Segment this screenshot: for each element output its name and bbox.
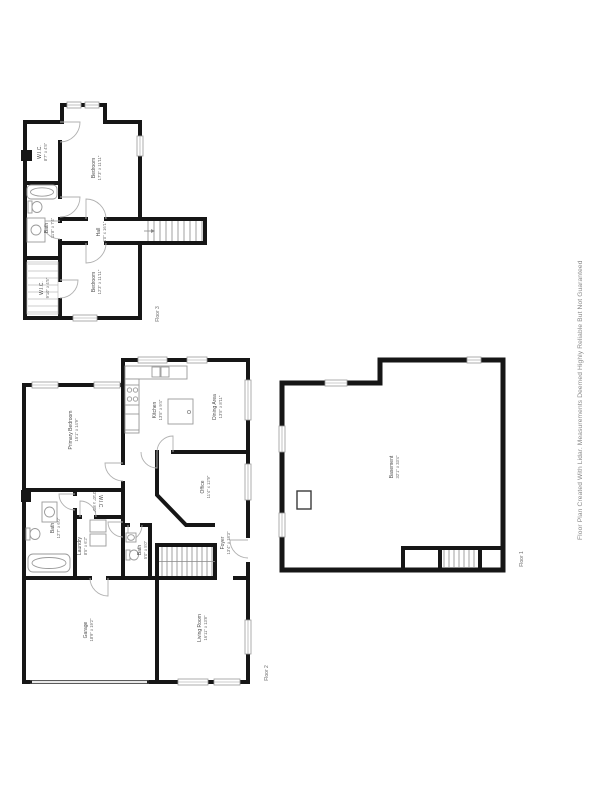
sink	[128, 535, 135, 541]
room-label-office: Office 11'4" x 12'9"	[200, 475, 211, 498]
room-dims: 11'8" x 7'4"	[50, 217, 55, 238]
room-dims: 3'10" x 8'0"	[92, 492, 97, 513]
toilet-bowl	[32, 202, 42, 213]
dryer	[90, 534, 106, 546]
toilet-tank	[26, 528, 30, 540]
floor2-laundry-fixtures	[90, 520, 106, 546]
floor2-stairs	[159, 547, 215, 576]
room-dims: 9'10" x 4'5"	[45, 277, 50, 298]
kitchen-sink	[152, 367, 160, 377]
room-dims: 16'11" x 13'8"	[203, 615, 208, 640]
room-label-wic: W.I.C. 3'10" x 8'0"	[92, 492, 103, 513]
room-label-wic-top: W.I.C. 8'7" x 4'5"	[37, 142, 48, 161]
room-label-foyer: Foyer 13'4" x 18'3"	[220, 531, 231, 554]
floor-label-text: Floor 2	[264, 665, 270, 681]
toilet-bowl	[30, 529, 40, 540]
room-dims: 17'3" x 11'11"	[97, 155, 102, 180]
room-dims: 8'7" x 4'5"	[43, 142, 48, 161]
chimney-block	[21, 150, 32, 161]
floor3-label: Floor 3	[155, 306, 161, 322]
floor1-plan: Basement 32'1" x 33'4" Floor 1	[280, 352, 530, 580]
room-dims: 4'0" x 16'1"	[102, 221, 107, 242]
room-label-bedroom-bottom: Bedroom 12'3" x 11'11"	[91, 269, 102, 294]
floor1-label: Floor 1	[519, 551, 525, 567]
floor2-doors	[59, 436, 248, 596]
room-label-basement: Basement 32'1" x 33'4"	[389, 455, 400, 478]
floor-label-text: Floor 1	[519, 551, 525, 567]
room-label-laundry: Laundry 8'5" x 6'2"	[77, 536, 88, 555]
support-column	[297, 491, 311, 509]
floor2-label: Floor 2	[264, 665, 270, 681]
room-label-primary-bedroom: Primary Bedroom 15'1" x 14'9"	[68, 411, 79, 450]
room-dims: 12'7" x 6'0"	[56, 517, 61, 538]
floor2-kitchen-fixtures	[125, 366, 193, 433]
room-dims: 5'0" x 5'0"	[143, 540, 148, 559]
room-dims: 32'1" x 33'4"	[395, 455, 400, 478]
floor3-stairs	[144, 221, 202, 241]
washer	[90, 520, 106, 532]
room-dims: 12'3" x 11'11"	[97, 269, 102, 294]
toilet-tank	[28, 201, 32, 213]
chimney-block	[21, 490, 31, 502]
floor3-plan: W.I.C. 8'7" x 4'5" Bedroom 17'3" x 11'11…	[18, 98, 218, 330]
room-label-living-room: Living Room 16'11" x 13'8"	[197, 614, 208, 642]
room-dims: 18'9" x 19'2"	[89, 618, 94, 641]
room-dims: 11'4" x 12'9"	[206, 475, 211, 498]
room-label-bedroom-top: Bedroom 17'3" x 11'11"	[91, 155, 102, 180]
room-label-dining-area: Dining Area 13'5" x 8'11"	[212, 394, 223, 420]
room-dims: 13'4" x 18'3"	[226, 531, 231, 554]
room-label-wic-bottom: W.I.C. 9'10" x 4'5"	[39, 277, 50, 298]
room-label-hall: Hall 4'0" x 16'1"	[96, 221, 107, 242]
room-dims: 15'1" x 14'9"	[74, 418, 79, 441]
sink	[31, 225, 41, 235]
kitchen-sink	[161, 367, 169, 377]
floor-label-text: Floor 3	[155, 306, 161, 322]
sink	[45, 507, 55, 517]
room-label-bath: Bath 11'8" x 7'4"	[44, 217, 55, 238]
disclaimer-text: Floor Plan Created With Lidar. Measureme…	[573, 255, 588, 545]
garage-door	[30, 681, 149, 684]
floor2-bath-fixtures	[26, 502, 70, 572]
room-dims: 8'5" x 6'2"	[83, 536, 88, 555]
floor-plan-page: W.I.C. 8'7" x 4'5" Bedroom 17'3" x 11'11…	[0, 0, 612, 792]
room-label-kitchen: Kitchen 13'5" x 9'4"	[152, 399, 163, 420]
floor1-stairs	[444, 550, 474, 568]
refrigerator	[125, 414, 139, 430]
room-dims: 13'5" x 8'11"	[218, 395, 223, 418]
room-dims: 13'5" x 9'4"	[158, 399, 163, 420]
floor2-plan: Primary Bedroom 15'1" x 14'9" Kitchen 13…	[18, 352, 276, 694]
room-label-garage: Garage 18'9" x 19'2"	[83, 618, 94, 641]
